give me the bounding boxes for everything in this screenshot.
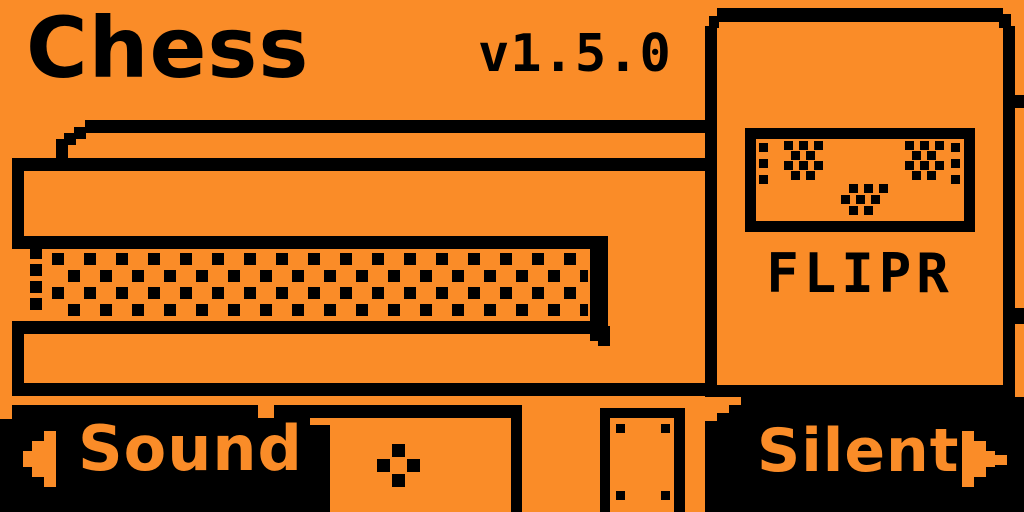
center-divider xyxy=(511,405,522,512)
small-panel xyxy=(600,408,685,512)
right-edge-stub-bottom xyxy=(1015,308,1024,324)
silent-button[interactable]: Silent xyxy=(705,385,1024,512)
band-top-border xyxy=(12,236,598,249)
version-label: v1.5.0 xyxy=(478,26,672,83)
silent-button-label: Silent xyxy=(757,421,959,481)
sound-button[interactable]: Sound xyxy=(0,398,332,512)
band-bottom-border xyxy=(12,321,598,334)
page-title: Chess xyxy=(26,6,309,90)
board-illustration xyxy=(12,120,705,396)
right-edge-stub-top xyxy=(1015,95,1024,108)
slab-bottom-edge xyxy=(12,383,705,396)
ok-button[interactable] xyxy=(332,418,511,512)
dotted-texture xyxy=(48,249,588,321)
flipper-screen: Chess v1.5.0 FLIPR Sound Silent xyxy=(0,0,1024,512)
sound-button-label: Sound xyxy=(78,418,303,480)
opponent-name: FLIPR xyxy=(717,244,1003,303)
